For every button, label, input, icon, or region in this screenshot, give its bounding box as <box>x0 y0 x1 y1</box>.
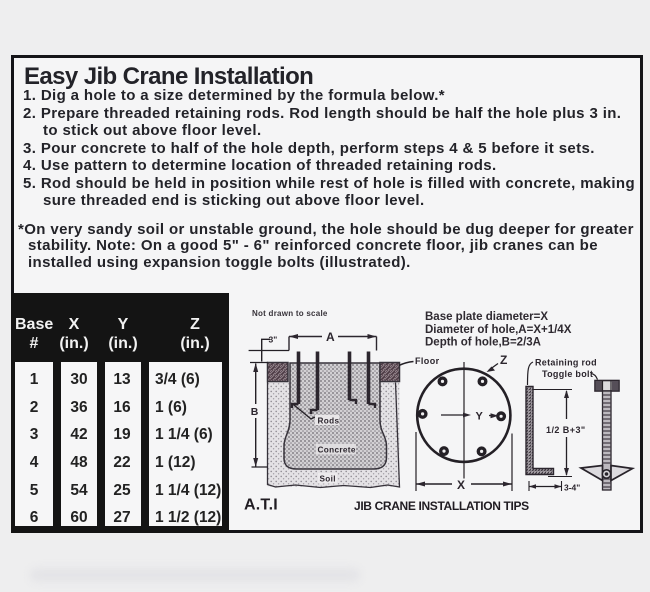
svg-text:Toggle bolt: Toggle bolt <box>542 369 593 379</box>
svg-text:Y: Y <box>476 411 484 423</box>
svg-text:Depth of hole,B=2/3A: Depth of hole,B=2/3A <box>425 337 541 349</box>
svg-text:Retaining rod: Retaining rod <box>535 358 597 368</box>
svg-text:1/2 B+3": 1/2 B+3" <box>546 425 586 435</box>
svg-text:Not drawn to scale: Not drawn to scale <box>252 309 328 318</box>
svg-text:Rods: Rods <box>318 417 340 426</box>
svg-text:Base plate diameter=X: Base plate diameter=X <box>425 311 548 323</box>
svg-text:A: A <box>326 330 335 344</box>
svg-text:Diameter of hole,A=X+1/4X: Diameter of hole,A=X+1/4X <box>425 324 572 336</box>
svg-text:Z: Z <box>500 353 507 367</box>
svg-text:Floor: Floor <box>415 356 440 366</box>
svg-text:Soil: Soil <box>320 475 336 484</box>
svg-text:3": 3" <box>269 335 278 345</box>
svg-text:A.T.I: A.T.I <box>244 497 278 514</box>
svg-text:JIB CRANE INSTALLATION TIPS: JIB CRANE INSTALLATION TIPS <box>354 499 529 513</box>
svg-text:B: B <box>251 406 259 418</box>
svg-text:Concrete: Concrete <box>318 446 356 455</box>
svg-text:3-4": 3-4" <box>564 483 580 493</box>
svg-text:X: X <box>457 478 465 492</box>
